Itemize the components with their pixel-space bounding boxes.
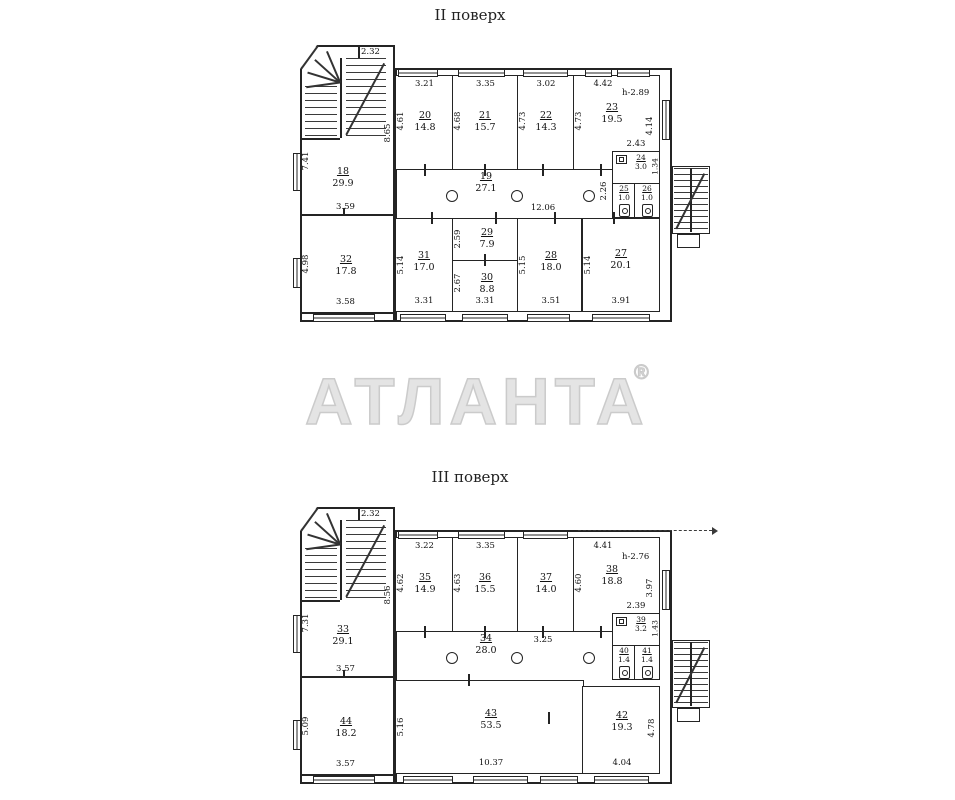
- dim-28-left: 5.15: [518, 250, 528, 280]
- stair-top-wall: [358, 45, 360, 58]
- door-mark: [554, 212, 556, 224]
- dim-29-left: 2.59: [453, 224, 463, 254]
- stair-divider-wall: [340, 58, 342, 138]
- room-label-27: 2720.1: [601, 248, 641, 273]
- dim-28-bottom: 3.51: [530, 296, 572, 306]
- room-label-33: 3329.1: [313, 624, 373, 649]
- door-mark: [600, 626, 602, 638]
- dim-24-top: 2.43: [610, 139, 662, 149]
- room-label-42: 4219.3: [602, 710, 642, 735]
- dim-36-top: 3.35: [452, 541, 519, 551]
- floor-plan-document: II поверх III поверх 2.32 1829.9 7.41 8.…: [0, 0, 955, 800]
- dim-30-bottom: 3.31: [466, 296, 504, 306]
- dim-27-left: 5.14: [583, 250, 593, 280]
- floor2-title: II поверх: [370, 6, 570, 24]
- ceiling-height-note: h-2.89: [622, 88, 649, 98]
- stair-divider-wall: [340, 520, 342, 600]
- window: [662, 100, 670, 140]
- column: [583, 190, 595, 202]
- room-label-20: 2014.8: [406, 110, 444, 135]
- registered-trademark-icon: ®: [634, 362, 649, 385]
- dim-35-left: 4.62: [396, 568, 406, 598]
- dim-32-left: 4.98: [301, 249, 311, 279]
- window: [313, 776, 375, 784]
- landing-wall: [300, 600, 340, 602]
- dim-24-right: 1.34: [651, 152, 660, 182]
- dim-20-left: 4.61: [396, 106, 406, 136]
- door-mark: [600, 164, 602, 176]
- room-label-44: 4418.2: [316, 716, 376, 741]
- dim-35-top: 3.22: [395, 541, 454, 551]
- room-label-34-corridor: 3428.0: [466, 633, 506, 658]
- window: [398, 531, 438, 539]
- floor3-plan: 2.32 3329.1 7.31 8.56 3.57 4418.2 5.09 3…: [288, 500, 728, 800]
- window: [313, 314, 375, 322]
- axis-arrow-icon: [712, 527, 722, 535]
- window: [523, 531, 568, 539]
- window: [462, 314, 508, 322]
- floor3-title: III поверх: [370, 468, 570, 486]
- toilet-icon: [642, 204, 653, 217]
- door-mark: [542, 164, 544, 176]
- window: [400, 314, 446, 322]
- window: [293, 720, 301, 750]
- dim-23-right: 4.14: [645, 111, 655, 141]
- ceiling-height-note: h-2.76: [622, 552, 649, 562]
- door-mark: [484, 626, 486, 638]
- dim-30-left: 2.67: [453, 268, 463, 298]
- door-mark: [548, 712, 550, 724]
- window: [293, 153, 301, 191]
- dim-36-left: 4.63: [453, 568, 463, 598]
- dim-31-bottom: 3.31: [405, 296, 443, 306]
- stair-landing: [677, 234, 700, 248]
- stair-top-wall: [358, 507, 360, 520]
- window: [617, 69, 650, 77]
- dim-39-top: 2.39: [610, 601, 662, 611]
- room-label-31: 3117.0: [405, 250, 443, 275]
- window: [540, 776, 578, 784]
- dim-stair-width: 2.32: [361, 509, 380, 519]
- room-label-18: 1829.9: [313, 166, 373, 191]
- dim-stair-width: 2.32: [361, 47, 380, 57]
- window: [594, 776, 649, 784]
- door-mark: [495, 212, 497, 224]
- toilet-icon: [619, 204, 630, 217]
- room-label-41: 411.4: [634, 647, 660, 664]
- landing-wall: [300, 138, 340, 140]
- dim-33-bottom: 3.57: [318, 664, 373, 674]
- dim-38-right: 3.97: [645, 573, 655, 603]
- room-label-28: 2818.0: [530, 250, 572, 275]
- window: [458, 69, 505, 77]
- floor2-plan: 2.32 1829.9 7.41 8.65 3.59 3217.8 4.98 3…: [288, 38, 728, 338]
- watermark-logo: АТЛАНТА: [305, 368, 649, 434]
- room-label-40: 401.4: [612, 647, 636, 664]
- dashed-axis-line: [578, 530, 712, 531]
- dim-23-left: 4.73: [574, 106, 584, 136]
- window: [527, 314, 570, 322]
- door-mark: [613, 212, 615, 224]
- stair-run-left: [305, 86, 337, 138]
- window: [293, 615, 301, 653]
- room-label-35: 3514.9: [406, 572, 444, 597]
- dim-22-left: 4.73: [518, 106, 528, 136]
- room-label-36: 3615.5: [466, 572, 504, 597]
- dim-38-top: 4.41: [573, 541, 633, 551]
- dim-corridor-width: 2.26: [599, 176, 609, 206]
- dim-21-left: 4.68: [453, 106, 463, 136]
- room-label-21: 2115.7: [466, 110, 504, 135]
- room-label-26: 261.0: [634, 185, 660, 202]
- window: [662, 570, 670, 610]
- door-mark: [424, 164, 426, 176]
- room-label-29: 297.9: [468, 227, 506, 252]
- room-label-22: 2214.3: [527, 110, 565, 135]
- window: [398, 69, 438, 77]
- dim-44-left: 5.09: [301, 711, 311, 741]
- room-label-32: 3217.8: [316, 254, 376, 279]
- column: [511, 190, 523, 202]
- dim-43-bottom: 10.37: [468, 758, 514, 768]
- dim-18-left: 7.41: [301, 146, 311, 176]
- window: [585, 69, 612, 77]
- column: [446, 190, 458, 202]
- column: [583, 652, 595, 664]
- stair-run-left: [305, 548, 337, 600]
- dim-38-left: 4.60: [574, 568, 584, 598]
- dim-18-bottom: 3.59: [318, 202, 373, 212]
- dim-27-bottom: 3.91: [601, 296, 641, 306]
- dim-18-right: 8.65: [383, 118, 393, 148]
- dim-20-top: 3.21: [395, 79, 454, 89]
- dim-21-top: 3.35: [452, 79, 519, 89]
- dim-44-bottom: 3.57: [318, 759, 373, 769]
- door-mark: [484, 254, 486, 266]
- window: [293, 258, 301, 288]
- dim-42-bottom: 4.04: [602, 758, 642, 768]
- window: [403, 776, 453, 784]
- room-label-30: 308.8: [468, 272, 506, 297]
- room-label-23: 2319.5: [593, 102, 631, 127]
- window: [592, 314, 650, 322]
- window: [473, 776, 528, 784]
- dim-39-right: 1.43: [651, 614, 660, 644]
- dim-33-left: 7.31: [301, 608, 311, 638]
- toilet-icon: [642, 666, 653, 679]
- door-mark: [424, 626, 426, 638]
- dim-33-right: 8.56: [383, 580, 393, 610]
- dim-31-left: 5.14: [396, 250, 406, 280]
- dim-22-top: 3.02: [517, 79, 575, 89]
- window: [458, 531, 505, 539]
- room-label-43: 4353.5: [470, 708, 512, 733]
- dim-42-right: 4.78: [647, 713, 657, 743]
- door-mark: [542, 626, 544, 638]
- room-label-38: 3818.8: [593, 564, 631, 589]
- column: [511, 652, 523, 664]
- room-label-25: 251.0: [612, 185, 636, 202]
- door-mark: [431, 212, 433, 224]
- dim-43-left: 5.16: [396, 712, 406, 742]
- room-label-37: 3714.0: [527, 572, 565, 597]
- toilet-icon: [619, 666, 630, 679]
- stair-landing: [677, 708, 700, 722]
- door-mark: [468, 674, 470, 686]
- dim-corridor-length: 12.06: [513, 203, 573, 213]
- dim-32-bottom: 3.58: [318, 297, 373, 307]
- column: [446, 652, 458, 664]
- room-label-19-corridor: 1927.1: [466, 171, 506, 196]
- door-mark: [484, 164, 486, 176]
- window: [523, 69, 568, 77]
